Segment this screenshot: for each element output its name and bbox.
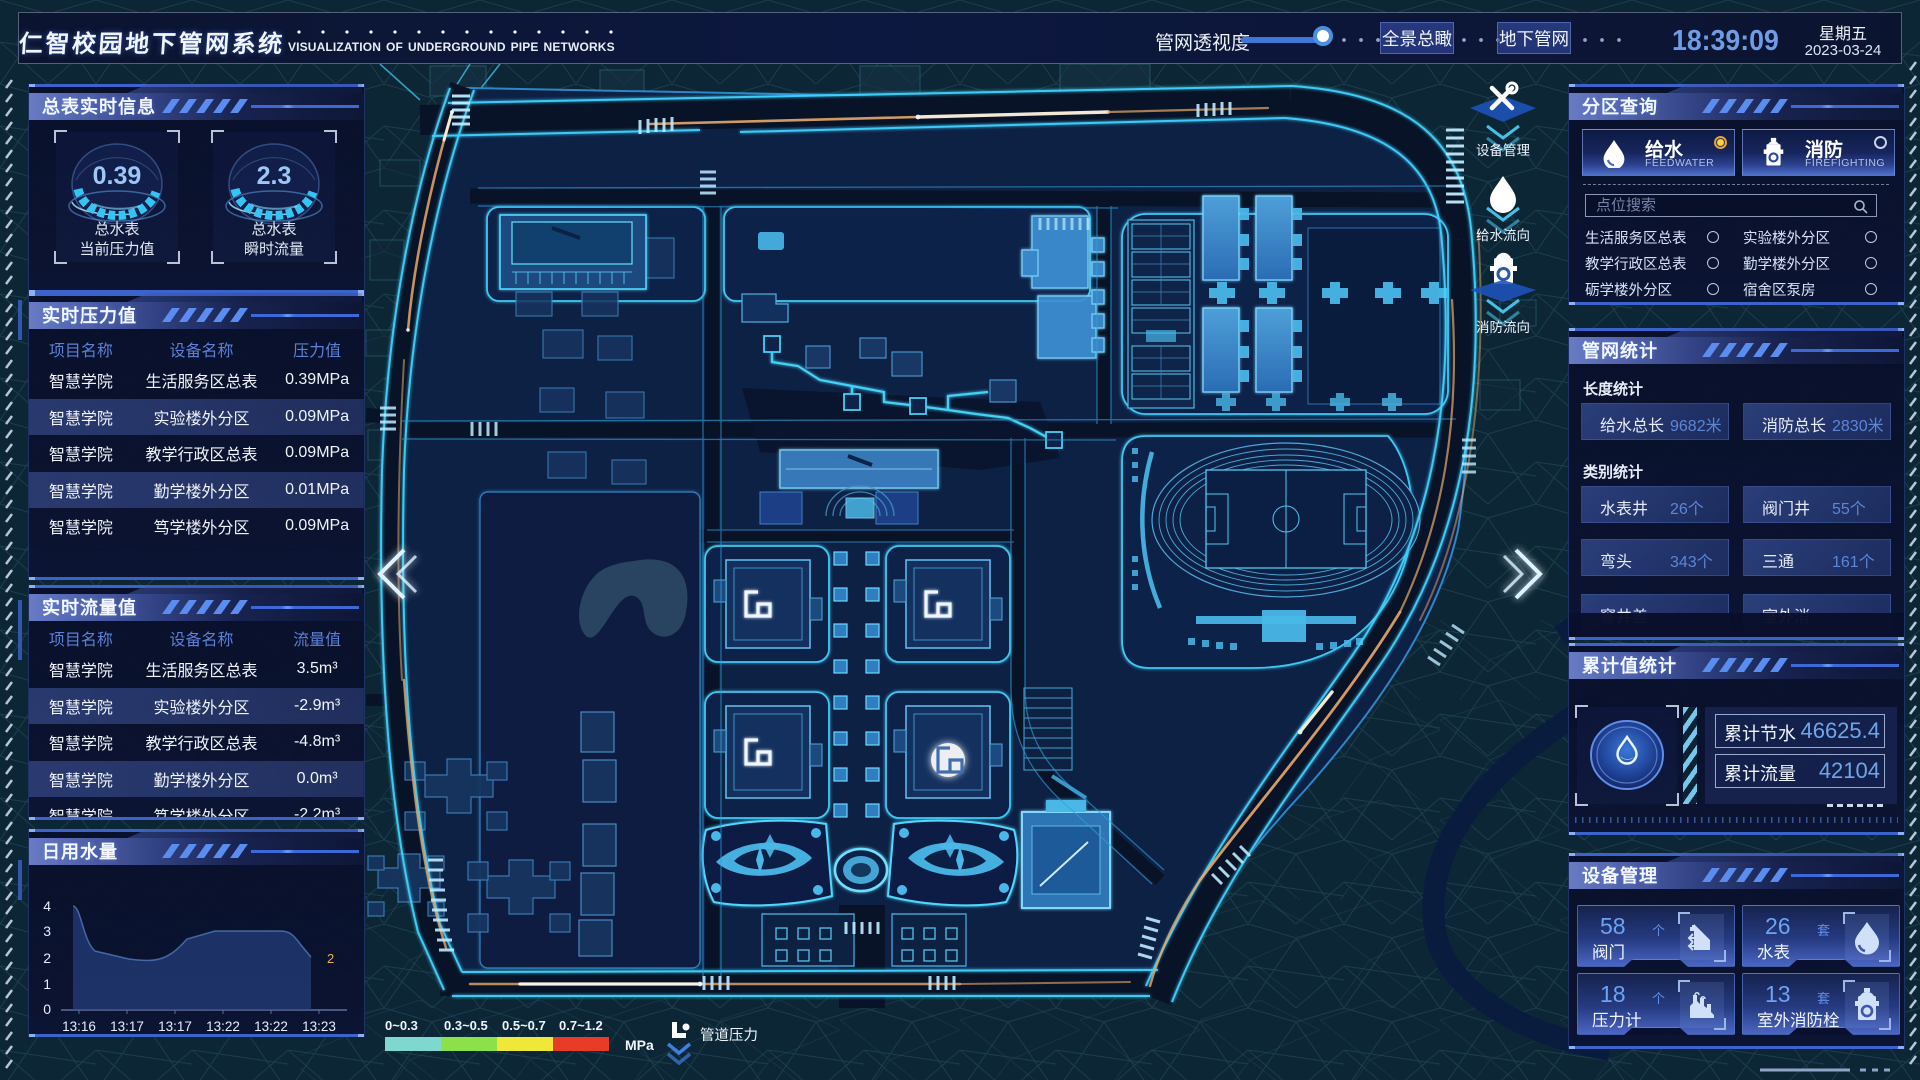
svg-text:3: 3 (43, 923, 51, 939)
svg-text:2.3: 2.3 (257, 162, 292, 190)
svg-text:0.7~1.2: 0.7~1.2 (559, 1018, 603, 1033)
svg-text:2: 2 (43, 950, 51, 966)
svg-text:0.5~0.7: 0.5~0.7 (502, 1018, 546, 1033)
svg-text:设备管理: 设备管理 (1476, 142, 1530, 158)
svg-text:MPa: MPa (625, 1037, 654, 1053)
svg-text:13:22: 13:22 (254, 1019, 288, 1034)
svg-text:消防流向: 消防流向 (1476, 320, 1530, 335)
svg-text:13:17: 13:17 (110, 1019, 144, 1034)
svg-text:13:22: 13:22 (206, 1019, 240, 1034)
svg-text:管道压力: 管道压力 (700, 1027, 758, 1044)
svg-text:4: 4 (43, 898, 51, 914)
svg-text:0: 0 (43, 1001, 51, 1017)
svg-text:0~0.3: 0~0.3 (385, 1018, 418, 1033)
svg-text:13:17: 13:17 (158, 1019, 192, 1034)
svg-text:2: 2 (327, 951, 334, 966)
svg-text:0.3~0.5: 0.3~0.5 (444, 1018, 488, 1033)
svg-text:13:16: 13:16 (62, 1019, 96, 1034)
svg-text:1: 1 (43, 976, 51, 992)
svg-text:给水流向: 给水流向 (1476, 228, 1530, 243)
svg-text:13:23: 13:23 (302, 1019, 336, 1034)
svg-text:0.39: 0.39 (93, 162, 142, 190)
